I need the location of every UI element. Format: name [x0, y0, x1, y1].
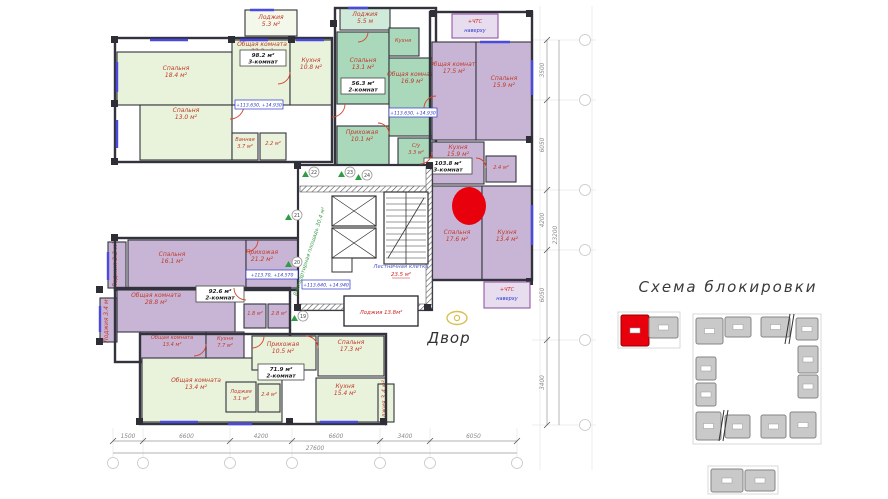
label: Спальня	[163, 65, 190, 72]
label: Общая комната	[429, 61, 479, 68]
room[interactable]: Лоджия5.3 м²	[245, 10, 297, 36]
elevation-note: +113.630, +14.930	[389, 108, 437, 117]
label: Кухня	[217, 336, 233, 342]
selected-apartment-marker[interactable]	[452, 187, 486, 225]
label: 2.8 м²	[271, 311, 287, 317]
block-number-chip	[798, 423, 808, 428]
label: Спальня	[444, 229, 471, 236]
label: 2.2 м²	[265, 141, 281, 147]
block[interactable]	[745, 470, 775, 491]
room[interactable]: Спальня16.1 м²	[128, 240, 246, 288]
room[interactable]: 2.4 м²	[486, 156, 516, 182]
room[interactable]: Общая комната17.5 м²	[429, 42, 479, 140]
block-scheme-layer	[618, 312, 821, 494]
block[interactable]	[761, 415, 786, 438]
label: Прихожая	[346, 129, 379, 136]
label: Лоджия	[229, 389, 251, 395]
label: 13.4 м²	[163, 342, 182, 348]
wall-column	[288, 36, 295, 43]
label: 13.0 м²	[175, 114, 198, 121]
block[interactable]	[790, 412, 816, 438]
block-number-chip	[659, 325, 669, 330]
block[interactable]	[761, 317, 790, 337]
staircase-area-label: 23.5 м²	[391, 271, 412, 278]
room[interactable]: 2.4 м²	[258, 384, 280, 412]
label: 13.4 м²	[496, 236, 519, 243]
wall-column	[294, 304, 301, 311]
grid-bubble	[580, 95, 591, 106]
label: 3-комнат	[248, 60, 278, 66]
label: 16.9 м²	[401, 78, 424, 85]
label: 15.9 м²	[493, 82, 516, 89]
label: 3.1 м²	[233, 396, 249, 402]
staircase	[384, 192, 428, 264]
label: 1500	[121, 434, 136, 440]
room[interactable]: Кухня13.4 м²	[482, 186, 532, 280]
label: 3.3 м²	[408, 150, 424, 156]
grid-bubble	[580, 185, 591, 196]
room[interactable]: Лоджия3.1 м²	[226, 382, 256, 412]
block-number-chip	[733, 325, 743, 330]
label: Кухня	[498, 229, 517, 236]
wall-column	[526, 136, 533, 143]
block-number-chip	[733, 424, 743, 429]
grid-bubble	[225, 458, 236, 469]
apartment-98-2: Спальня18.4 м²Общая комната23.2 м²Кухня1…	[115, 10, 332, 162]
block[interactable]	[696, 412, 721, 440]
label: Спальня	[491, 75, 518, 82]
wall-column	[96, 338, 103, 345]
room[interactable]: Кухня15.4 м²	[316, 378, 386, 422]
wall-column	[136, 418, 143, 425]
label: 19	[300, 314, 306, 320]
grid-bubble	[512, 458, 523, 469]
elevation-note: +113.630, +14.930	[235, 100, 283, 109]
label: +ЧТС	[468, 19, 483, 25]
block[interactable]	[696, 357, 716, 380]
courtyard-label: Двор	[426, 329, 470, 347]
label: 10.5 м²	[272, 348, 295, 355]
label: 16.1 м²	[161, 258, 184, 265]
label: Кухня	[302, 57, 321, 64]
room[interactable]: 2.2 м²	[260, 133, 286, 160]
label: +113.630, +14.930	[236, 102, 282, 108]
wall-column	[111, 36, 118, 43]
grid-bubble	[580, 335, 591, 346]
stair-core-layer	[298, 165, 432, 326]
wall-column	[111, 158, 118, 165]
apartment-info-box: 98.2 м²3-комнат	[240, 50, 286, 66]
room-area[interactable]	[476, 42, 532, 140]
label: 15.9 м²	[447, 151, 470, 158]
label: Спальня	[173, 107, 200, 114]
label: Спальня	[338, 339, 365, 346]
eye-icon	[447, 312, 467, 325]
label: 3400	[540, 375, 546, 390]
label: 6600	[179, 434, 194, 440]
label: 56.3 м²	[352, 80, 375, 87]
room[interactable]: Лоджия5.5 м	[340, 8, 390, 30]
hatched-wall	[300, 186, 430, 192]
label: +ЧТС	[500, 287, 515, 293]
block-number-chip	[705, 329, 715, 334]
wall-column	[228, 36, 235, 43]
block[interactable]	[798, 346, 818, 373]
block-number-chip	[630, 328, 640, 333]
grid-bubble	[580, 420, 591, 431]
block[interactable]	[725, 415, 750, 438]
label: Кухня	[449, 144, 468, 151]
room[interactable]: Спальня17.3 м²	[318, 336, 384, 376]
grid-bubble	[580, 35, 591, 46]
label: 20	[294, 260, 300, 266]
block-scheme-title: Схема блокировки	[638, 278, 817, 296]
label: Прихожая	[267, 341, 300, 348]
room[interactable]: Ванная3.7 м²	[232, 133, 258, 160]
label: 23	[347, 170, 353, 176]
grid-bubble	[425, 458, 436, 469]
label: 28.8 м²	[145, 299, 168, 306]
room[interactable]: Кухня10.8 м²	[290, 40, 332, 105]
label: Спальня	[350, 57, 377, 64]
wall-column	[96, 286, 103, 293]
elevator-shaft	[332, 196, 376, 226]
label: Спальня	[159, 251, 186, 258]
wall-column	[294, 162, 301, 169]
wall-column	[111, 234, 118, 241]
block-number-chip	[701, 366, 711, 371]
block-current[interactable]	[621, 315, 649, 346]
label: 4200	[254, 434, 269, 440]
room[interactable]: Спальня13.0 м²	[140, 105, 232, 160]
room-area[interactable]	[290, 40, 332, 105]
label: Лоджия 3.4 м²	[103, 297, 110, 344]
apartment-info-box: 56.3 м²2-комнат	[341, 78, 385, 94]
label: Общая комната	[171, 377, 221, 384]
label: +113.640, +14.940	[303, 282, 349, 288]
room[interactable]: 2.8 м²	[268, 304, 290, 328]
label: 6050	[540, 287, 546, 302]
room[interactable]: Прихожая10.1 м²	[337, 126, 389, 166]
staircase-label: Лестничная клетка	[372, 264, 428, 270]
label: 13.4 м²	[185, 384, 208, 391]
label: наверху	[496, 296, 518, 302]
block-number-chip	[803, 384, 813, 389]
apartment-56-3: Лоджия5.5 мСпальня13.1 м²КухняОбщая комн…	[335, 8, 437, 167]
label: 7.7 м²	[217, 343, 233, 349]
wall-column	[330, 20, 337, 27]
block-number-chip	[701, 392, 711, 397]
block-number-chip	[704, 424, 714, 429]
label: 21.2 м²	[251, 256, 274, 263]
label: 17.6 м²	[446, 236, 469, 243]
block-number-chip	[769, 424, 779, 429]
label: Общая комната	[131, 292, 181, 299]
room[interactable]: Лоджия 3.3 м²	[108, 242, 126, 289]
block[interactable]	[696, 383, 716, 406]
grid-bubble	[580, 245, 591, 256]
block[interactable]	[711, 469, 743, 492]
label: Общая комната	[151, 335, 193, 341]
grid-bubble	[375, 458, 386, 469]
label: 103.8 м²	[435, 160, 462, 167]
label: 21	[294, 213, 300, 219]
label: Лоджия	[257, 14, 284, 21]
entrance-arrow-icon	[285, 214, 292, 220]
grid-bubble	[138, 458, 149, 469]
label: 3-комнат	[433, 168, 463, 174]
label: 5.5 м	[357, 18, 373, 25]
upper-level-note: +ЧТСнаверху	[484, 282, 530, 308]
label: Лоджия	[351, 11, 378, 18]
label: Прихожая	[246, 249, 279, 256]
block[interactable]	[798, 375, 818, 398]
block[interactable]	[725, 317, 751, 337]
label: 3.7 м²	[237, 144, 253, 150]
floorplan-canvas: Спальня18.4 м²Общая комната23.2 м²Кухня1…	[0, 0, 888, 499]
label: 6050	[466, 434, 481, 440]
label: 10.1 м²	[351, 136, 374, 143]
total-dimension-bottom: 27600	[306, 446, 325, 452]
label: 92.6 м²	[209, 288, 232, 295]
upper-level-note: +ЧТСнаверху	[452, 14, 498, 38]
label: Кухня	[395, 38, 411, 44]
label: 98.2 м²	[252, 52, 275, 59]
grid-bubble	[287, 458, 298, 469]
label: Ванная	[235, 137, 254, 143]
block[interactable]	[696, 318, 723, 344]
label: 3400	[398, 434, 413, 440]
label: 17.5 м²	[443, 68, 466, 75]
wall-column	[111, 100, 118, 107]
label: наверху	[464, 28, 486, 34]
label: 13.1 м²	[352, 64, 375, 71]
wall-column	[426, 162, 433, 169]
label: 6600	[329, 434, 344, 440]
label: 10.8 м²	[300, 64, 323, 71]
room[interactable]: Кухня7.7 м²	[206, 332, 244, 360]
label: 17.3 м²	[340, 346, 363, 353]
label: 18.4 м²	[165, 72, 188, 79]
apartment-info-box: 92.6 м²2-комнат	[196, 286, 244, 302]
label: 24	[364, 173, 370, 179]
room-area[interactable]	[258, 384, 280, 412]
label: 1.8 м²	[247, 311, 263, 317]
label: 71.9 м²	[270, 366, 293, 373]
wall-column	[526, 10, 533, 17]
label: +113.70, +14.570	[251, 272, 294, 278]
label: 5.3 м²	[262, 21, 281, 28]
elevator-shaft	[332, 228, 376, 258]
label: 2.4 м²	[493, 165, 509, 171]
room[interactable]: Кухня	[389, 28, 419, 56]
label: С/у	[412, 143, 421, 149]
total-dimension-right: 23200	[553, 225, 559, 244]
grid-bubble	[108, 458, 119, 469]
label: Кухня	[336, 383, 355, 390]
label: Общая комната	[237, 41, 287, 48]
label: 15.4 м²	[334, 390, 357, 397]
room[interactable]: 1.8 м²	[244, 304, 266, 328]
wall-column	[286, 418, 293, 425]
label: +113.630, +14.930	[390, 110, 436, 116]
elevation-note: +113.640, +14.940	[302, 280, 350, 289]
room-area[interactable]	[128, 240, 246, 288]
block-number-chip	[722, 478, 732, 483]
label: 6050	[540, 137, 546, 152]
label: 2-комнат	[348, 88, 378, 94]
apartment-103-8: Общая комната17.5 м²Спальня15.9 м²Кухня1…	[424, 12, 532, 280]
wall-column	[424, 304, 431, 311]
label: 2.4 м²	[261, 392, 277, 398]
block-number-chip	[771, 325, 781, 330]
label: 4200	[540, 212, 546, 227]
room-area[interactable]	[432, 42, 476, 140]
room[interactable]: Спальня15.9 м²	[476, 42, 532, 140]
block-number-chip	[803, 357, 813, 362]
wall-column	[430, 10, 437, 17]
block[interactable]	[796, 318, 818, 340]
unit-number-marker[interactable]: 19	[291, 311, 308, 321]
lobby-label: Лоджия 13.8м²	[359, 309, 403, 316]
label: 3500	[540, 62, 546, 77]
label: 22	[311, 170, 317, 176]
block-number-chip	[755, 478, 765, 483]
label: 2-комнат	[266, 374, 296, 380]
wall-column	[380, 418, 387, 425]
room[interactable]: Спальня18.4 м²	[117, 52, 232, 105]
label: 2-комнат	[205, 296, 235, 302]
block-number-chip	[802, 327, 812, 332]
entrance-arrow-icon	[291, 315, 298, 321]
apartment-info-box: 71.9 м²2-комнат	[258, 364, 304, 380]
elevation-note: +113.70, +14.570	[246, 270, 298, 279]
unit-number-marker[interactable]: 21	[285, 210, 302, 220]
block[interactable]	[649, 317, 678, 338]
shaft-small	[332, 258, 352, 272]
